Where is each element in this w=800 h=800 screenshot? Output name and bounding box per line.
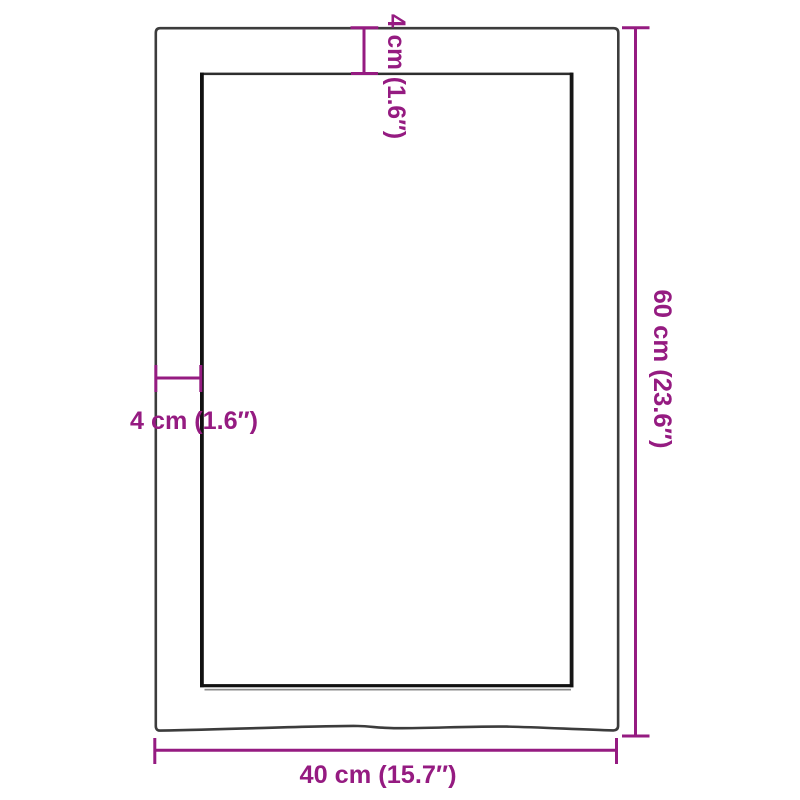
- svg-text:4 cm (1.6″): 4 cm (1.6″): [382, 14, 410, 139]
- svg-text:40 cm (15.7″): 40 cm (15.7″): [300, 761, 457, 789]
- svg-text:4 cm (1.6″): 4 cm (1.6″): [130, 407, 258, 435]
- svg-text:60 cm (23.6″): 60 cm (23.6″): [648, 290, 676, 449]
